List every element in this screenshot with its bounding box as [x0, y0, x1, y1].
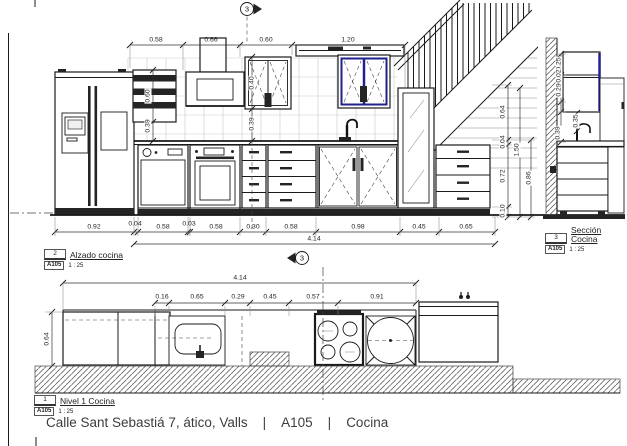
- dim-label: 0.45: [263, 294, 276, 301]
- drawer-unit-stairs: [436, 145, 490, 208]
- dim-label: 0.04: [500, 134, 507, 149]
- dim-label: 1.50: [514, 142, 521, 157]
- view-number: 3: [545, 233, 567, 244]
- dim-label: 0.60: [259, 37, 272, 44]
- view-number: 1: [34, 395, 56, 406]
- view-title: Sección Cocina: [571, 226, 627, 244]
- dishwasher: [138, 145, 188, 215]
- dim-label: 0.58: [156, 224, 169, 231]
- open-shelf-unit: [133, 70, 176, 122]
- faucet-elevation: [339, 120, 357, 141]
- plan-view: [35, 267, 620, 400]
- dim-label: 0.16: [155, 294, 168, 301]
- dim-label: 0.02: [556, 68, 563, 83]
- section-marker-number: 3: [245, 5, 249, 14]
- view-scale: 1 : 25: [68, 263, 83, 269]
- view-scale: 1 : 25: [569, 247, 584, 253]
- oven: [190, 145, 240, 215]
- dim-label: 0.04: [128, 221, 141, 228]
- dim-label: 0.45: [412, 224, 425, 231]
- title-footer: Calle Sant Sebastiá 7, ático, Valls | A1…: [46, 415, 388, 430]
- sheet-number: A105: [545, 245, 565, 254]
- dim-label: 0.29: [556, 82, 563, 97]
- view-title: Alzado cocina: [70, 251, 123, 260]
- dim-label: 0.65: [459, 224, 472, 231]
- dim-label: 0.35: [573, 113, 580, 128]
- dim-label: 1.20: [341, 37, 354, 44]
- dim-label: 0.86: [526, 170, 533, 185]
- dim-label: 0.65: [190, 294, 203, 301]
- dim-total-label: 4.14: [307, 236, 320, 243]
- dim-label: 0.57: [306, 294, 319, 301]
- view-number: 2: [44, 249, 66, 260]
- dim-total-label: 4.14: [233, 275, 246, 282]
- tall-cabinet: [398, 88, 434, 208]
- wall-shelf: [296, 45, 404, 56]
- dim-label: 0.03: [182, 221, 195, 228]
- dim-label: 0.58: [284, 224, 297, 231]
- dim-label: 0.66: [204, 37, 217, 44]
- footer-room: Cocina: [346, 415, 388, 430]
- dim-label: 0.39: [249, 116, 256, 131]
- dim-label: 0.40: [249, 75, 256, 90]
- footer-separator: |: [263, 415, 267, 430]
- window-double: [338, 55, 390, 108]
- dim-label: 0.39: [555, 125, 562, 140]
- dim-label: 0.39: [145, 118, 152, 133]
- dim-label: 0.58: [149, 37, 162, 44]
- drawer-unit-wide: [268, 145, 316, 208]
- fridge-elevation: [55, 69, 134, 215]
- view-label-section: 3 Sección Cocina A105 1 : 25: [545, 226, 627, 254]
- dim-label: 0.60: [145, 88, 152, 103]
- section-marker-number: 3: [300, 254, 304, 263]
- dim-label: 0.64: [500, 104, 507, 119]
- footer-sheet: A105: [281, 415, 313, 430]
- dim-label: 0.30: [246, 224, 259, 231]
- dim-label: 0.91: [370, 294, 383, 301]
- dim-label: 0.98: [351, 224, 364, 231]
- view-scale: 1 : 25: [58, 409, 73, 415]
- footer-separator: |: [328, 415, 332, 430]
- sheet-number: A105: [44, 261, 64, 270]
- section-marker-mid: [287, 252, 309, 265]
- view-title: Nivel 1 Cocina: [60, 397, 115, 406]
- drawing-sheet: 0.58 0.66 0.60 1.20 0.92 0.04 0.58 0.03 …: [0, 0, 627, 446]
- dim-label: 0.92: [87, 224, 100, 231]
- footer-address: Calle Sant Sebastiá 7, ático, Valls: [46, 415, 248, 430]
- sink-base-cabinet: [318, 145, 398, 208]
- view-label-elevation: 2 Alzado cocina A105 1 : 25: [44, 249, 123, 270]
- extractor-hood: [186, 38, 244, 106]
- view-label-plan: 1 Nivel 1 Cocina A105 1 : 25: [34, 395, 115, 416]
- dim-label: 0.72: [500, 168, 507, 183]
- dim-label: 0.10: [500, 203, 507, 218]
- dim-label: 0.64: [44, 331, 51, 346]
- dim-label: 0.58: [209, 224, 222, 231]
- dim-label: 0.29: [231, 294, 244, 301]
- drawer-unit-narrow: [242, 145, 266, 208]
